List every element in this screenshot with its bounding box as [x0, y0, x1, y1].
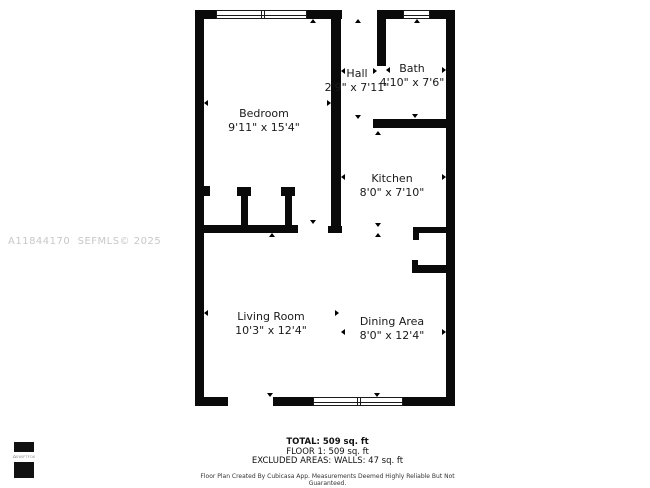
- plan-wall: [328, 226, 342, 233]
- room-dimensions: 8'0" x 7'10": [360, 186, 425, 200]
- room-name: Dining Area: [360, 315, 425, 329]
- room-label-living_room: Living Room10'3" x 12'4": [235, 310, 307, 337]
- plan-wall: [237, 187, 251, 196]
- plan-wall: [331, 19, 341, 233]
- room-name: Kitchen: [360, 172, 425, 186]
- room-dimensions: 8'0" x 12'4": [360, 329, 425, 343]
- measure-arrow-right: [442, 174, 446, 180]
- window: [216, 10, 307, 19]
- room-label-kitchen: Kitchen8'0" x 7'10": [360, 172, 425, 199]
- measure-arrow-down: [374, 393, 380, 397]
- room-label-bedroom: Bedroom9'11" x 15'4": [228, 107, 300, 134]
- logo-band: ⌂ SWIFTFOX: [14, 452, 34, 462]
- plan-wall: [273, 397, 313, 406]
- measure-arrow-up: [310, 19, 316, 23]
- area-summary: TOTAL: 509 sq. ft FLOOR 1: 509 sq. ft EX…: [195, 438, 460, 487]
- room-label-bath: Bath4'10" x 7'6": [380, 62, 445, 89]
- room-name: Bath: [380, 62, 445, 76]
- measure-arrow-left: [204, 310, 208, 316]
- measure-arrow-up: [375, 233, 381, 237]
- measure-arrow-up: [375, 131, 381, 135]
- measure-arrow-down: [267, 393, 273, 397]
- window: [403, 10, 430, 19]
- room-dimensions: 4'10" x 7'6": [380, 76, 445, 90]
- plan-wall: [195, 397, 228, 406]
- measure-arrow-up: [414, 19, 420, 23]
- plan-wall: [446, 10, 455, 406]
- plan-wall: [281, 187, 295, 196]
- room-name: Bedroom: [228, 107, 300, 121]
- window-divider: [261, 11, 262, 18]
- measure-arrow-right: [335, 310, 339, 316]
- measure-arrow-right: [327, 100, 331, 106]
- window-divider: [357, 398, 358, 405]
- logo-block-top: [14, 442, 34, 452]
- disclaimer-text: Floor Plan Created By Cubicasa App. Meas…: [195, 473, 460, 487]
- room-dimensions: 10'3" x 12'4": [235, 324, 307, 338]
- measure-arrow-down: [355, 115, 361, 119]
- room-name: Living Room: [235, 310, 307, 324]
- floor-plan-page: A11844170 SEFMLS© 2025 Bedroom9'11" x 15…: [0, 0, 650, 488]
- window: [313, 397, 403, 406]
- excluded-area-text: EXCLUDED AREAS: WALLS: 47 sq. ft: [195, 457, 460, 467]
- measure-arrow-left: [341, 329, 345, 335]
- plan-wall: [412, 260, 418, 273]
- plan-wall: [373, 119, 455, 128]
- plan-wall: [195, 10, 204, 406]
- room-dimensions: 9'11" x 15'4": [228, 121, 300, 135]
- measure-arrow-left: [341, 174, 345, 180]
- window-pane-line: [404, 15, 429, 16]
- watermark-logo: ⌂ SWIFTFOX: [14, 442, 34, 478]
- logo-block-bottom: [14, 462, 34, 478]
- window-pane-line: [314, 402, 402, 403]
- measure-arrow-down: [412, 114, 418, 118]
- measure-arrow-down: [310, 220, 316, 224]
- measure-arrow-up: [355, 19, 361, 23]
- plan-wall: [204, 186, 210, 196]
- floor-plan: Bedroom9'11" x 15'4"Hall2'9" x 7'11"Bath…: [0, 0, 650, 488]
- plan-wall: [285, 196, 292, 230]
- room-label-dining_area: Dining Area8'0" x 12'4": [360, 315, 425, 342]
- window-divider: [264, 11, 265, 18]
- measure-arrow-down: [375, 223, 381, 227]
- plan-wall: [377, 19, 386, 66]
- plan-wall: [413, 227, 419, 240]
- measure-arrow-left: [204, 100, 208, 106]
- plan-wall: [241, 196, 248, 230]
- window-divider: [360, 398, 361, 405]
- plan-wall: [403, 397, 455, 406]
- logo-brand-text: SWIFTFOX: [16, 455, 35, 459]
- measure-arrow-up: [269, 233, 275, 237]
- measure-arrow-right: [442, 329, 446, 335]
